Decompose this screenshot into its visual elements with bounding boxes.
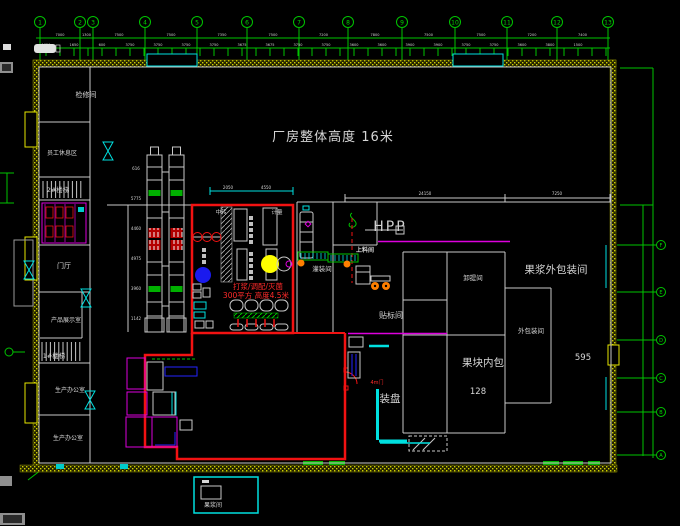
grid-axis-letter: D: [659, 338, 663, 344]
dimension-text: 3750: [126, 43, 135, 47]
right-wall-door-opening: [608, 345, 619, 365]
dimension-text: 3675: [238, 43, 247, 47]
grid-axis-number: 1: [38, 20, 42, 27]
grid-axis-number: 4: [143, 20, 147, 27]
pump-roller: [298, 260, 305, 267]
dimension-text: 7200: [528, 33, 537, 37]
left-wall-door-opening: [25, 383, 37, 423]
dimension-text: 7500: [424, 33, 433, 37]
dim-595: 595: [575, 353, 591, 363]
left-wall-door-opening: [25, 112, 37, 147]
dimension-text: 3750: [210, 43, 219, 47]
red-room-note-1: 打浆/调配/灭菌: [233, 281, 284, 291]
grid-axis-number: 5: [195, 20, 199, 27]
room-label-office-2: 生产办公室: [53, 434, 83, 442]
dimension-text: 3960: [131, 286, 142, 291]
yellow-tank: [261, 255, 279, 273]
cad-floor-plan-canvas: 12345678910111213 7000130075007500735075…: [0, 0, 680, 526]
dimension-text: 2050: [223, 185, 234, 190]
grid-axis-number: 9: [400, 20, 404, 27]
dimension-text: 3750: [322, 43, 331, 47]
label-metering: 计量: [271, 208, 283, 216]
grid-axis-number: 12: [553, 20, 561, 27]
room-label-hpp: HPP: [373, 219, 406, 235]
tower-red-band: [149, 240, 161, 250]
tower-red-band: [171, 240, 183, 250]
dimension-text: 7500: [477, 33, 486, 37]
dimension-text: 4550: [261, 185, 272, 190]
dimension-text: 3750: [294, 43, 303, 47]
dimension-text: 1500: [574, 43, 583, 47]
room-label-tray-loading: 装盘: [380, 392, 401, 405]
room-label-showroom: 产品展示室: [51, 316, 81, 324]
tower-green-band: [149, 190, 161, 196]
dimension-text: 616: [132, 166, 140, 171]
dimension-text: 7800: [371, 33, 380, 37]
dimension-text: 7350: [218, 33, 227, 37]
tower-red-band: [171, 228, 183, 238]
room-label-unloading: 卸提间: [463, 273, 483, 282]
room-label-outer-packaging: 外包装间: [518, 326, 544, 335]
tower-green-band: [171, 286, 183, 292]
background: [0, 0, 680, 526]
room-label-maintenance: 检修间: [76, 90, 97, 99]
dimension-text: 5775: [131, 196, 142, 201]
dimension-text: 1650: [70, 43, 79, 47]
dimension-text: 7500: [115, 33, 124, 37]
dimension-text: 600: [99, 43, 106, 47]
dimension-text: 7500: [167, 33, 176, 37]
dimension-text: 3750: [182, 43, 191, 47]
room-label-filling: 灌装间: [312, 264, 332, 273]
dimension-text: 4975: [131, 256, 142, 261]
dimension-text: 7400: [578, 33, 587, 37]
room-label-loading: 上料间: [356, 246, 374, 254]
grid-axis-number: 8: [346, 20, 350, 27]
dimension-text: 3750: [462, 43, 471, 47]
room-label-inner-packaging: 果块内包: [462, 356, 504, 369]
door-4m-label: 4m门: [370, 379, 383, 386]
grid-axis-letter: B: [659, 410, 663, 416]
dimension-text: 24150: [419, 191, 432, 196]
top-wall-door-opening: [453, 54, 503, 66]
tower-red-band: [149, 228, 161, 238]
pump-roller: [344, 261, 351, 268]
grid-axis-number: 6: [245, 20, 249, 27]
dimension-text: 4460: [131, 226, 142, 231]
dimension-text: 3600: [350, 43, 359, 47]
grid-axis-number: 10: [451, 20, 459, 27]
dim-128: 128: [470, 387, 486, 397]
dimension-text: 1142: [131, 316, 142, 321]
dimension-text: 3675: [266, 43, 275, 47]
label-transfer: 中转: [215, 208, 227, 216]
room-label-labeling: 贴标间: [379, 310, 403, 320]
dimension-text: 3900: [434, 43, 443, 47]
truck-symbol: [34, 44, 56, 53]
room-label-stairs-1: 1#楼梯: [43, 351, 66, 360]
dimension-text: 3800: [546, 43, 555, 47]
grid-axis-number: 2: [78, 20, 82, 27]
room-label-lobby: 门厅: [57, 261, 71, 270]
dimension-text: 3900: [406, 43, 415, 47]
grid-axis-number: 13: [604, 20, 612, 27]
dimension-text: 1300: [82, 33, 91, 37]
grid-axis-letter: F: [660, 243, 663, 249]
dimension-text: 3600: [378, 43, 387, 47]
room-label-staff-rest: 员工休息区: [47, 149, 77, 157]
grid-axis-letter: E: [659, 290, 662, 296]
dimension-text: 7200: [319, 33, 328, 37]
dimension-text: 3600: [518, 43, 527, 47]
room-label-pulp-outer-packaging: 果浆外包装间: [525, 263, 588, 276]
room-label-stairs-2: 2#楼梯: [47, 185, 70, 194]
blue-tank: [195, 267, 211, 283]
grid-axis-number: 7: [297, 20, 301, 27]
tower-green-band: [171, 190, 183, 196]
pump-house-label: 果浆间: [204, 501, 222, 509]
dimension-text: 3750: [490, 43, 499, 47]
grid-axis-number: 11: [503, 20, 511, 27]
grid-axis-letter: A: [659, 453, 663, 459]
red-room-note-2: 300平方 高度4.5米: [223, 290, 290, 300]
dimension-text: 7250: [552, 191, 563, 196]
dimension-text: 3750: [154, 43, 163, 47]
dimension-text: 7500: [269, 33, 278, 37]
room-label-office-1: 生产办公室: [55, 386, 85, 394]
grid-axis-number: 3: [91, 20, 95, 27]
grid-axis-letter: C: [659, 376, 663, 382]
overall-height-note: 厂房整体高度 16米: [272, 129, 394, 145]
tower-green-band: [149, 286, 161, 292]
dimension-text: 7000: [56, 33, 65, 37]
top-wall-door-opening: [147, 54, 197, 66]
